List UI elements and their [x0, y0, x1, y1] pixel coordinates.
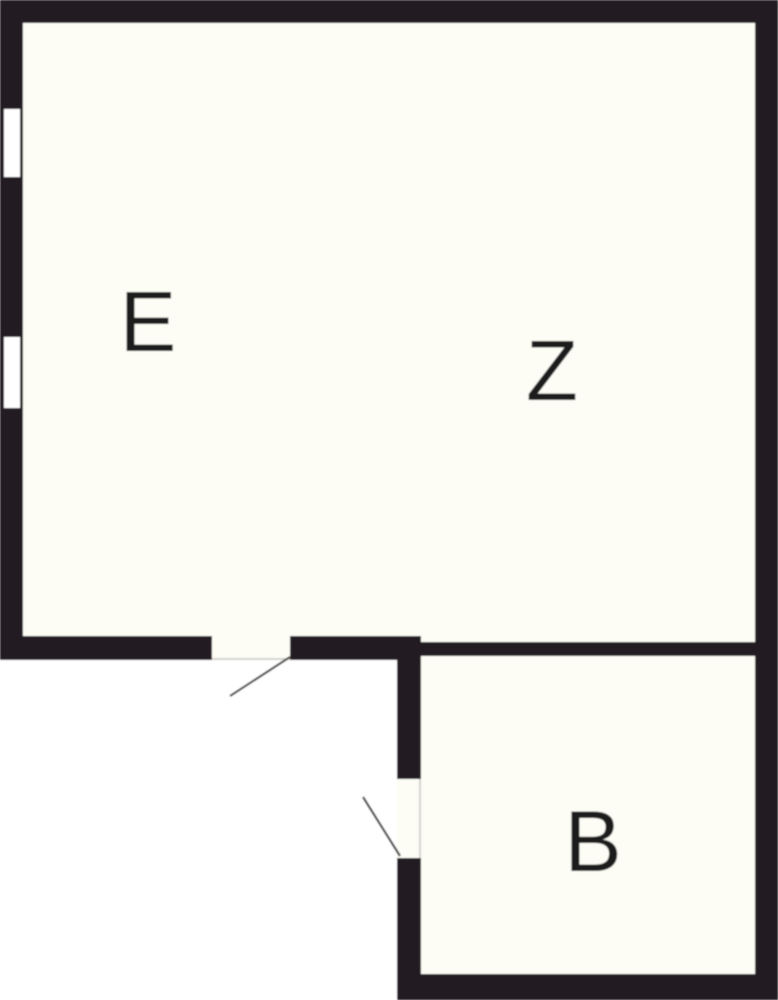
svg-text:B: B [564, 794, 621, 890]
svg-text:E: E [120, 275, 177, 370]
svg-text:Z: Z [526, 324, 578, 419]
